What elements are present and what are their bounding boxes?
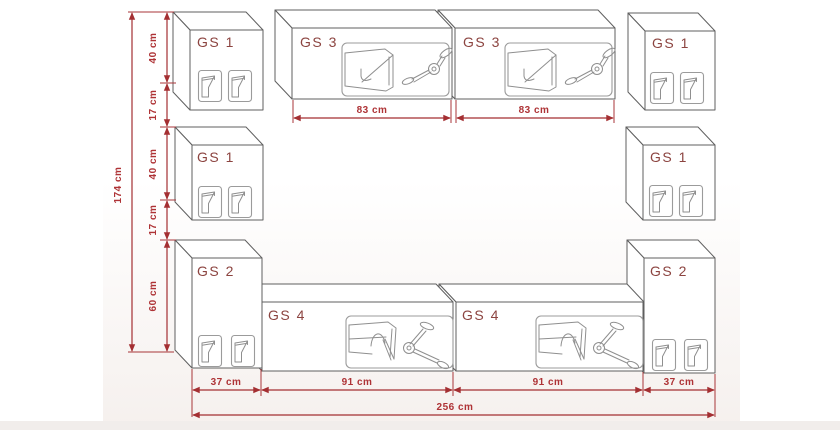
cabinet-label: GS 3 <box>300 34 338 50</box>
cabinet-label: GS 4 <box>268 307 306 323</box>
cabinet-label: GS 3 <box>463 34 501 50</box>
cabinet-gs1-top-right: GS 1 <box>628 13 715 110</box>
dimension-label: 37 cm <box>664 377 695 388</box>
cabinet-gs1-mid-right: GS 1 <box>626 127 715 220</box>
dimension-label: 17 cm <box>148 90 159 121</box>
dimension-label: 91 cm <box>533 377 564 388</box>
dimension-label: 83 cm <box>357 105 388 116</box>
cabinet-gs4-bottom-center-left: GS 4 <box>245 284 453 371</box>
cabinet-gs3-top-center-right: GS 3 <box>438 10 616 99</box>
cabinet-label: GS 1 <box>197 149 235 165</box>
dimension-label: 91 cm <box>342 377 373 388</box>
dimension-label: 60 cm <box>148 281 159 312</box>
cabinet-label: GS 1 <box>197 34 235 50</box>
dimension-label: 37 cm <box>211 377 242 388</box>
bottom-band <box>0 421 840 430</box>
cabinet-gs1-top-left: GS 1 <box>173 12 263 110</box>
dimension-label: 40 cm <box>148 149 159 180</box>
wall-unit-dimension-diagram: GS 2 GS 4 GS 4 GS 2 GS 3 <box>0 0 840 430</box>
cabinet-gs1-mid-left: GS 1 <box>175 127 263 220</box>
dimension-label: 17 cm <box>148 205 159 236</box>
cabinet-label: GS 2 <box>650 263 688 279</box>
cabinet-label: GS 2 <box>197 263 235 279</box>
dimension-label: 174 cm <box>113 167 124 204</box>
cabinet-gs4-bottom-center-right: GS 4 <box>439 284 644 371</box>
dimension-label: 83 cm <box>519 105 550 116</box>
diagram-canvas: GS 2 GS 4 GS 4 GS 2 GS 3 <box>0 0 840 430</box>
cabinet-label: GS 1 <box>652 35 690 51</box>
cabinet-label: GS 1 <box>650 149 688 165</box>
dimension-label: 256 cm <box>437 402 474 413</box>
cabinet-label: GS 4 <box>462 307 500 323</box>
cabinet-gs3-top-center-left: GS 3 <box>275 10 453 99</box>
cabinet-gs2-bottom-left: GS 2 <box>175 240 262 368</box>
dimension-label: 40 cm <box>148 33 159 64</box>
